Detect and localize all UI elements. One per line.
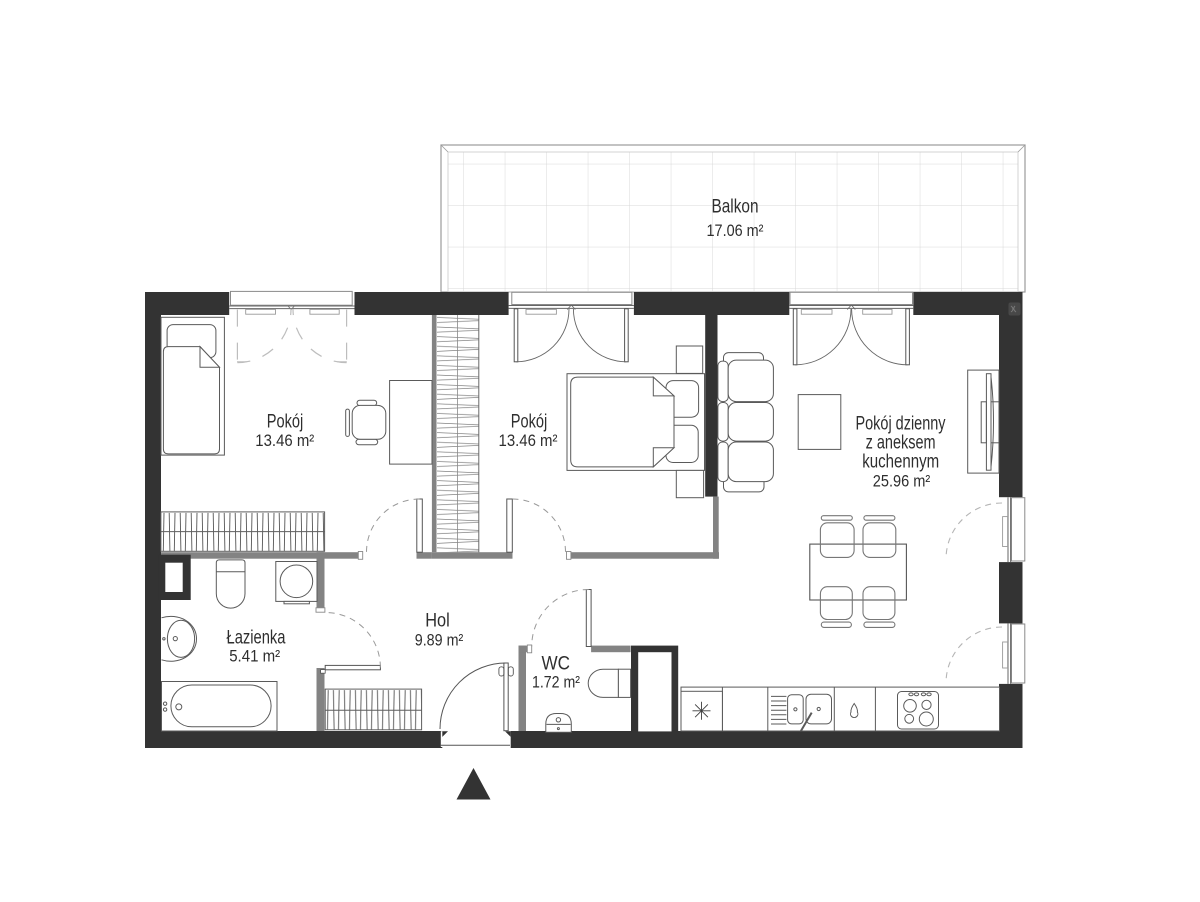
svg-text:Pokój: Pokój [511,412,548,433]
svg-text:9.89 m²: 9.89 m² [415,632,464,650]
svg-text:1.72 m²: 1.72 m² [532,673,580,691]
svg-text:13.46 m²: 13.46 m² [255,432,314,450]
svg-text:kuchennym: kuchennym [862,451,939,472]
svg-text:WC: WC [541,654,570,675]
svg-text:25.96 m²: 25.96 m² [873,472,931,490]
svg-text:z aneksem: z aneksem [866,432,936,453]
svg-text:17.06 m²: 17.06 m² [707,222,764,240]
svg-text:Balkon: Balkon [712,197,759,218]
svg-text:Pokój dzienny: Pokój dzienny [856,413,946,434]
svg-text:Pokój: Pokój [267,412,304,433]
svg-text:Hol: Hol [425,611,450,632]
svg-text:5.41 m²: 5.41 m² [229,648,280,666]
svg-text:13.46 m²: 13.46 m² [499,432,558,450]
svg-text:Łazienka: Łazienka [227,628,286,649]
